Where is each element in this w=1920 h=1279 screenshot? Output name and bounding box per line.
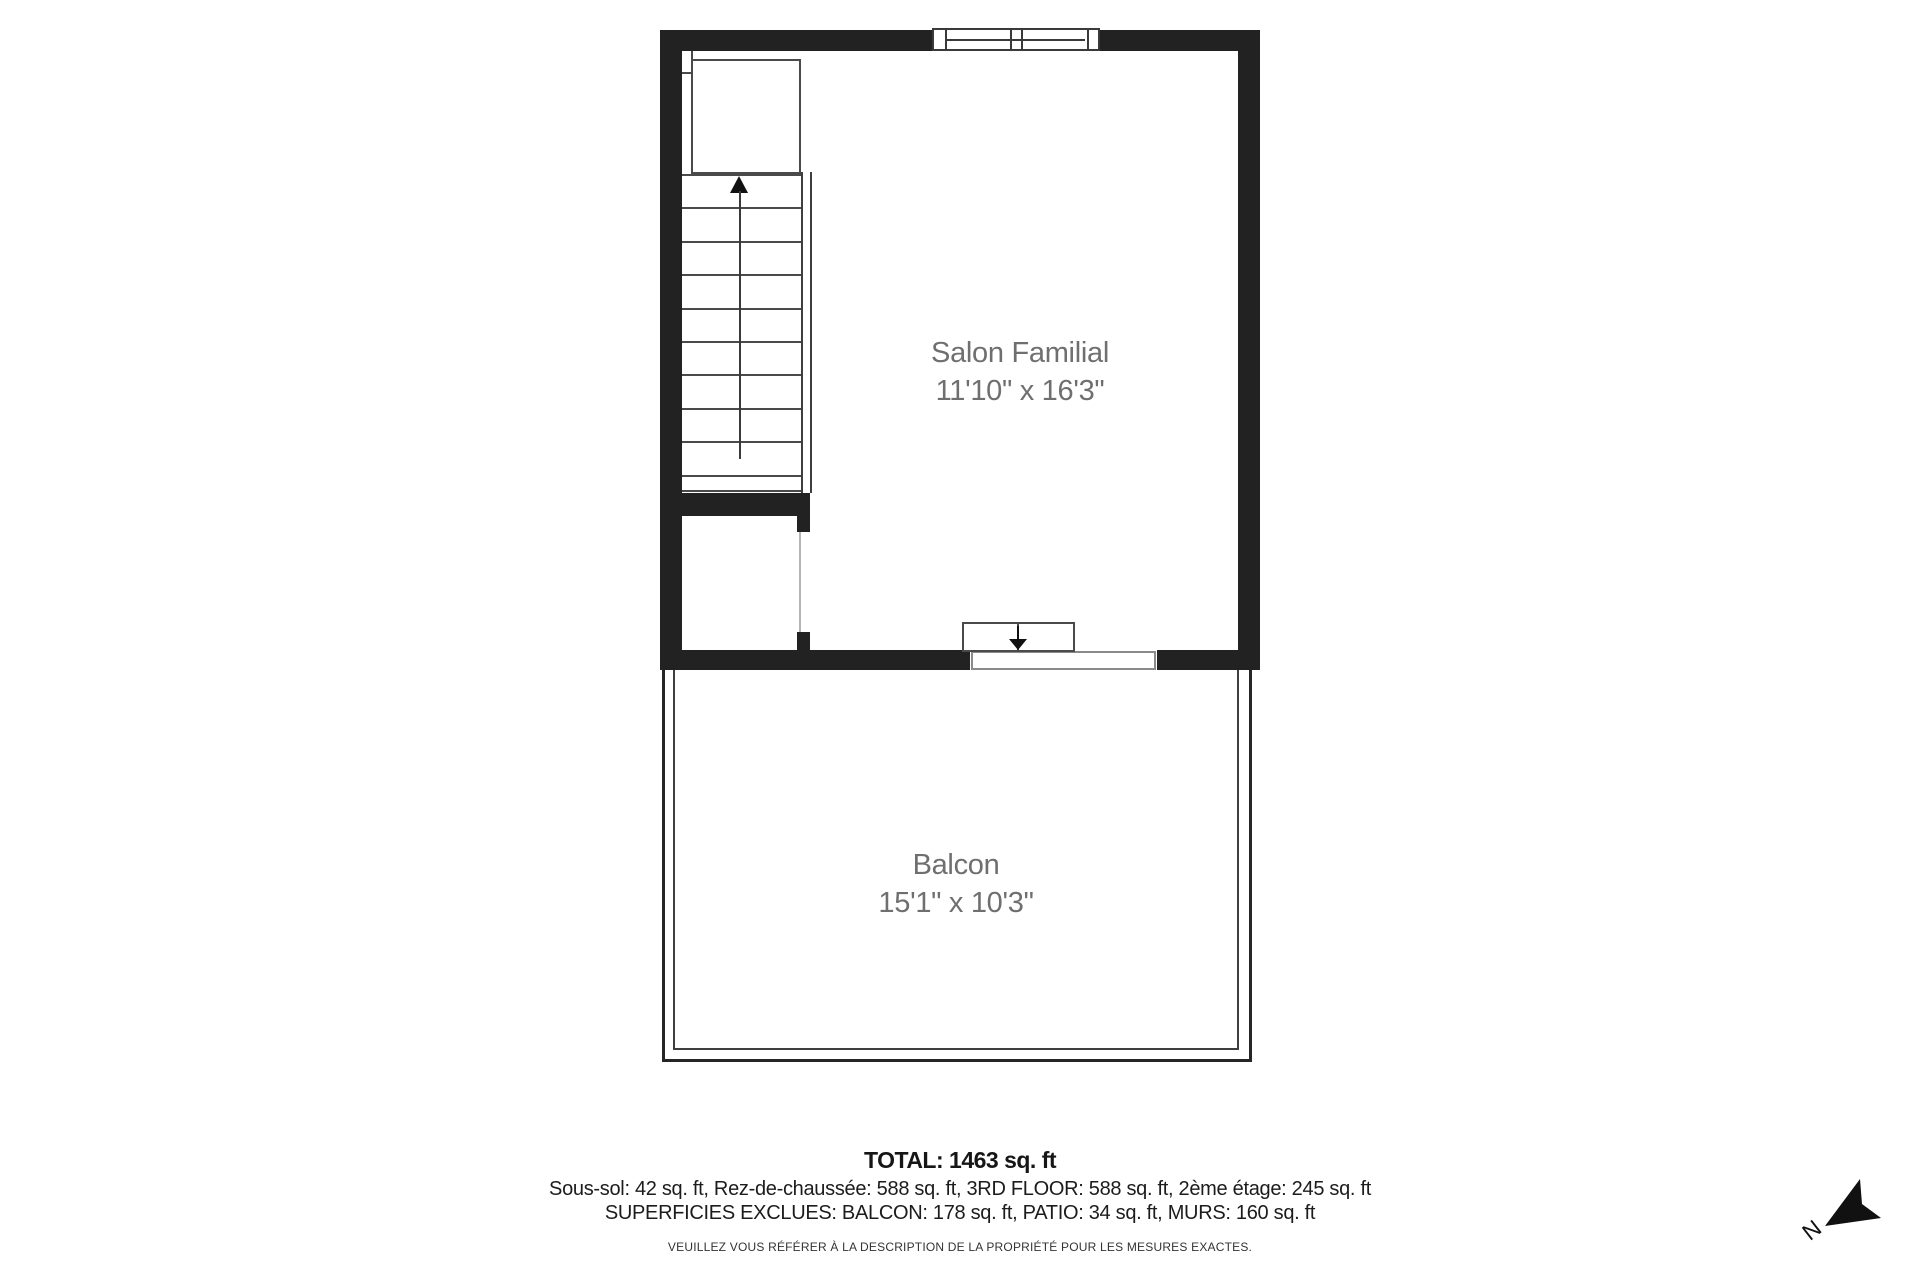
up-arrow-stem: [739, 191, 741, 459]
summary-total: TOTAL: 1463 sq. ft: [0, 1149, 1920, 1172]
door-jamb-top: [797, 516, 810, 532]
room-label-salon: Salon Familial 11'10" x 16'3": [801, 334, 1239, 410]
wall-bottom-left-segment: [660, 650, 970, 670]
down-arrow-stem: [1017, 626, 1019, 640]
floor-plan-page: Salon Familial 11'10" x 16'3" Balcon 15'…: [0, 0, 1920, 1279]
balcony-door-sill: [971, 651, 1156, 670]
room-dimensions: 11'10" x 16'3": [801, 372, 1239, 410]
north-label: N: [1797, 1215, 1826, 1246]
room-name: Balcon: [673, 846, 1239, 884]
exit-step-indicator: [962, 622, 1075, 652]
summary-disclaimer: VEUILLEZ VOUS RÉFÉRER À LA DESCRIPTION D…: [0, 1241, 1920, 1253]
stair-tread-line: [682, 475, 801, 477]
north-arrow-icon: N: [1795, 1168, 1905, 1268]
interior-wall: [660, 493, 810, 516]
room-dimensions: 15'1" x 10'3": [673, 884, 1239, 922]
stair-direction-arrow: [730, 176, 749, 460]
window-center-line: [945, 39, 1085, 41]
down-arrow-icon: [1009, 639, 1027, 650]
wall-top-left-segment: [660, 30, 933, 51]
window: [932, 28, 1100, 51]
wall-top-right-segment: [1099, 30, 1260, 51]
stair-bottom-line: [682, 490, 801, 492]
north-arrow-shape: [1825, 1179, 1881, 1226]
wall-bottom-right-segment: [1157, 650, 1260, 670]
stair-landing: [691, 59, 801, 174]
door-jamb-bottom: [797, 632, 810, 650]
closet-opening-line: [799, 532, 801, 632]
room-name: Salon Familial: [801, 334, 1239, 372]
room-label-balcon: Balcon 15'1" x 10'3": [673, 846, 1239, 922]
summary-excluded: SUPERFICIES EXCLUES: BALCON: 178 sq. ft,…: [0, 1203, 1920, 1223]
stair-rail: [801, 172, 812, 493]
summary-floor-areas: Sous-sol: 42 sq. ft, Rez-de-chaussée: 58…: [0, 1179, 1920, 1199]
window-frame-bar: [1087, 30, 1089, 49]
wall-left: [660, 30, 682, 670]
wall-right: [1238, 30, 1260, 670]
